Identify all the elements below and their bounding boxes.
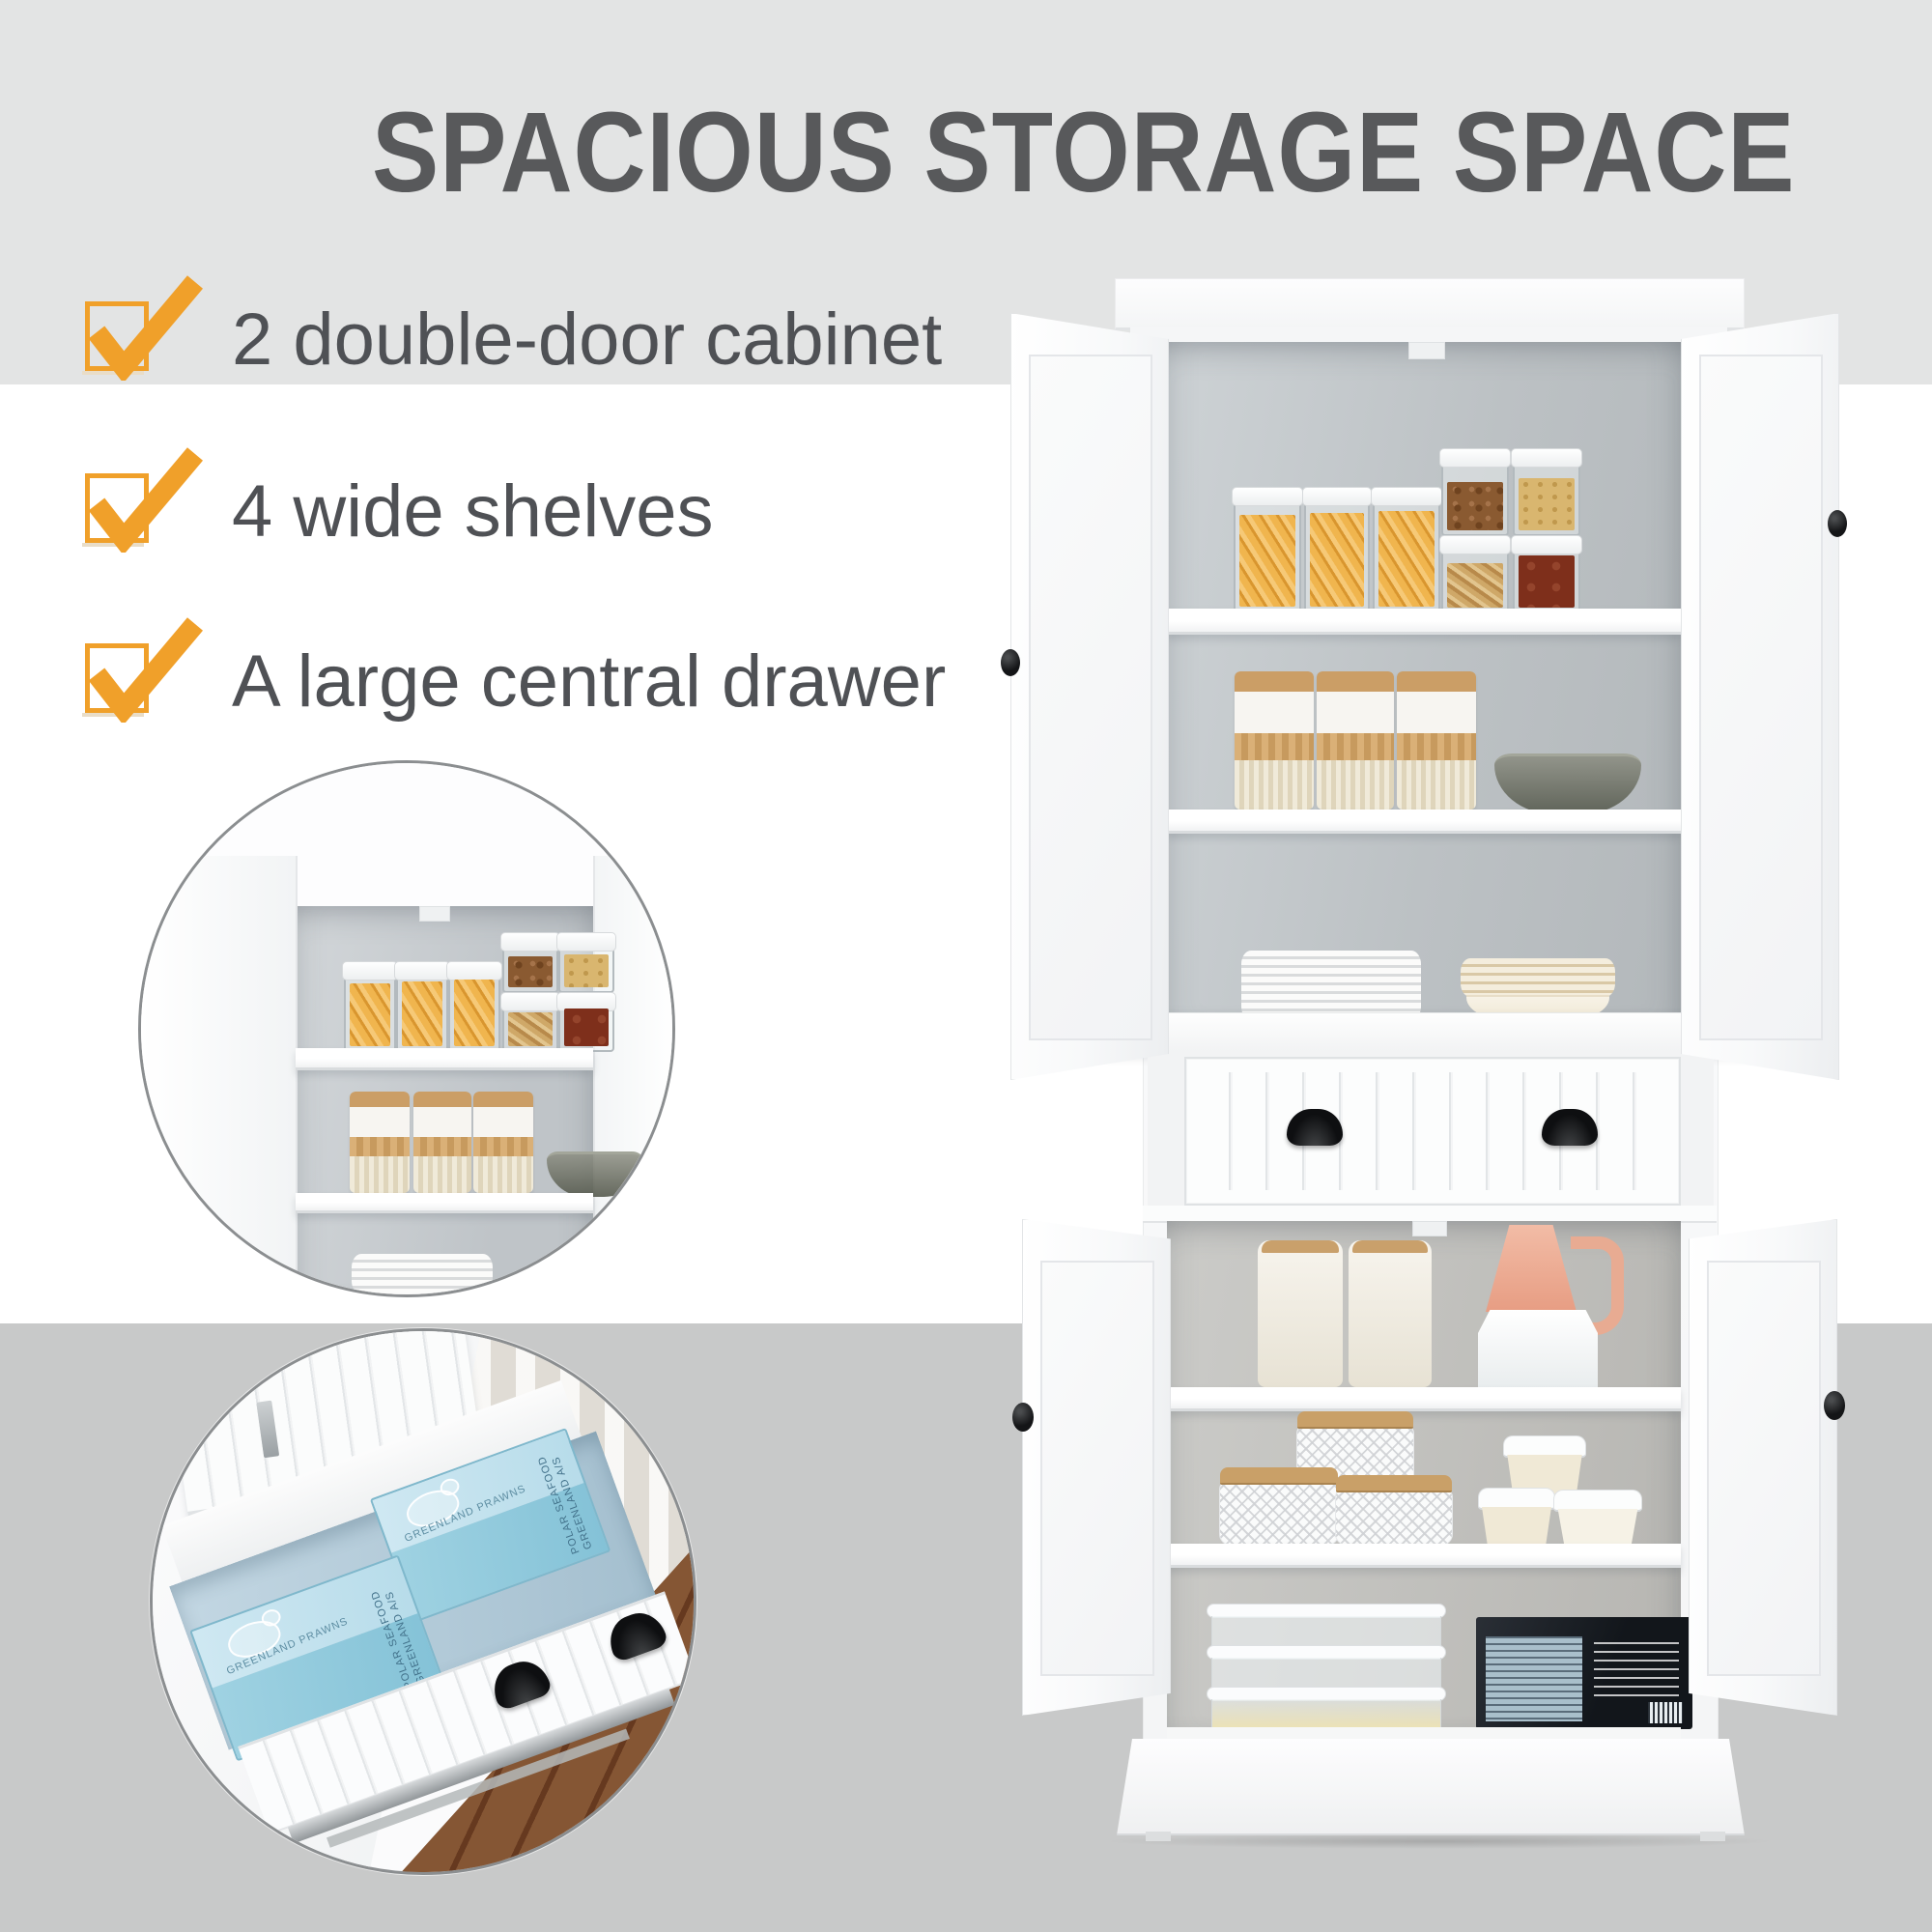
chickpea-container xyxy=(1513,449,1580,536)
ribbed-base xyxy=(1397,760,1476,810)
penne-pasta xyxy=(1378,511,1435,607)
penne-pasta xyxy=(350,983,390,1046)
container-lid xyxy=(342,961,398,980)
canister-top xyxy=(350,1107,410,1138)
container-lid xyxy=(1232,487,1303,506)
drawer-cup-handle xyxy=(1287,1109,1343,1146)
box-body xyxy=(1211,1658,1441,1688)
walnut-container xyxy=(502,933,558,993)
shelf xyxy=(1167,1544,1681,1568)
canister-top xyxy=(1397,692,1476,733)
box-body xyxy=(1211,1699,1441,1729)
walnuts xyxy=(1447,482,1503,530)
checkmark-icon xyxy=(79,288,205,394)
ceramic-canister xyxy=(473,1092,533,1193)
red-dates xyxy=(564,1009,609,1046)
product-infographic: SPACIOUS STORAGE SPACE 2 double-door cab… xyxy=(0,0,1932,1932)
shelf xyxy=(1167,609,1681,635)
cabinet-foot xyxy=(1146,1832,1171,1841)
chickpeas xyxy=(564,954,609,987)
rattan-band xyxy=(413,1137,471,1156)
chickpeas xyxy=(1519,478,1575,530)
canister-top xyxy=(1235,692,1314,733)
upper-left-door xyxy=(1010,313,1169,1080)
check-tick-icon xyxy=(89,274,203,381)
ribbed-base xyxy=(1235,760,1314,810)
checklist-item-label: 2 double-door cabinet xyxy=(232,303,942,377)
checklist-item-label: A large central drawer xyxy=(232,645,946,719)
penne-pasta xyxy=(402,981,442,1046)
tub-body xyxy=(1478,1507,1555,1544)
hinge xyxy=(256,1401,279,1459)
door-knob xyxy=(1001,649,1020,676)
drawer-cup-handle xyxy=(1542,1109,1598,1146)
penne-pasta xyxy=(454,980,495,1046)
cabinet-crown-top xyxy=(1115,278,1745,330)
tub-lid xyxy=(1503,1435,1586,1458)
cereal-container xyxy=(1441,536,1509,613)
food-storage-box xyxy=(1209,1687,1443,1729)
container-lid xyxy=(1302,487,1372,506)
canister-top xyxy=(413,1107,471,1138)
walnut-container xyxy=(1441,449,1509,536)
ceramic-canister xyxy=(1317,671,1394,810)
rattan-band xyxy=(1397,733,1476,759)
container-lid xyxy=(1511,535,1582,554)
inset-open-drawer-closeup: GREENLAND PRAWNS POLAR SEAFOOD GREENLAND… xyxy=(150,1328,696,1875)
container-lid xyxy=(500,932,560,952)
ribbed-base xyxy=(413,1156,471,1193)
checkmark-icon xyxy=(79,460,205,566)
canister-top xyxy=(473,1107,533,1138)
walnuts xyxy=(508,956,553,987)
door-latch xyxy=(1408,342,1445,359)
check-tick-icon xyxy=(89,446,203,553)
rattan-band xyxy=(1317,733,1394,759)
cabinet-shadow xyxy=(1101,1833,1777,1849)
door-knob xyxy=(1824,1391,1845,1420)
shelf xyxy=(296,1193,593,1213)
plinth-base xyxy=(1117,1739,1745,1835)
icecream-tub xyxy=(1478,1488,1555,1544)
checkmark-icon xyxy=(79,630,205,736)
textured-canister xyxy=(1219,1480,1339,1546)
central-drawer xyxy=(1184,1057,1681,1206)
plate-stack xyxy=(1241,951,1421,1020)
ribbed-base xyxy=(473,1156,533,1193)
pasta-container xyxy=(1234,488,1301,612)
drawer-cup-handle xyxy=(603,1606,669,1663)
page-title: SPACIOUS STORAGE SPACE xyxy=(372,85,1795,222)
cabinet-floor-board xyxy=(1167,1727,1681,1739)
inset-top-cabinet-closeup xyxy=(138,760,675,1297)
tub-lid xyxy=(1553,1490,1642,1512)
door-knob xyxy=(1828,510,1847,537)
container-lid xyxy=(556,932,616,952)
storage-cylinder xyxy=(1258,1240,1343,1387)
tub-lid xyxy=(1478,1488,1555,1510)
drawer-beadboard-panel xyxy=(1196,1072,1669,1190)
box-text-lines xyxy=(1594,1642,1679,1698)
pasta-container xyxy=(1304,488,1370,612)
cereal xyxy=(508,1012,553,1046)
black-product-box xyxy=(1476,1617,1692,1729)
ceramic-canister xyxy=(1235,671,1314,810)
checklist-item-label: 4 wide shelves xyxy=(232,475,714,549)
door-latch xyxy=(419,906,450,922)
carafe-top xyxy=(1486,1225,1577,1312)
check-tick-icon xyxy=(89,616,203,723)
shelf xyxy=(1167,810,1681,834)
container-lid xyxy=(1371,487,1442,506)
container-lid xyxy=(500,992,560,1011)
door-latch xyxy=(1412,1221,1447,1236)
cabinet-foot xyxy=(1700,1832,1725,1841)
food-storage-box xyxy=(1209,1604,1443,1646)
door-knob xyxy=(1012,1403,1034,1432)
canister-top xyxy=(1317,692,1394,733)
barcode xyxy=(1648,1702,1683,1723)
red-dates xyxy=(1519,555,1575,608)
food-storage-box xyxy=(1209,1645,1443,1688)
bowl-stack xyxy=(1461,958,1615,997)
rattan-band xyxy=(473,1137,533,1156)
ribbed-base xyxy=(1317,760,1394,810)
cereal-container xyxy=(502,993,558,1052)
pasta-container xyxy=(1373,488,1440,612)
shelf xyxy=(296,1048,593,1070)
ceramic-canister xyxy=(1397,671,1476,810)
pasta-container xyxy=(344,962,396,1052)
container-lid xyxy=(1439,448,1511,468)
carafe-body xyxy=(1478,1310,1598,1387)
icecream-tub xyxy=(1503,1435,1586,1495)
countertop xyxy=(1107,1012,1752,1055)
dates-container xyxy=(1513,536,1580,613)
container-lid xyxy=(394,961,450,980)
box-label-panel xyxy=(1486,1636,1582,1721)
lower-right-door xyxy=(1689,1219,1837,1716)
pasta-container xyxy=(448,962,500,1052)
right-door-edge xyxy=(593,856,674,1294)
coffee-carafe xyxy=(1478,1225,1623,1387)
rattan-band xyxy=(350,1137,410,1156)
storage-cylinder xyxy=(1349,1240,1432,1387)
chickpea-container xyxy=(558,933,614,993)
box-body xyxy=(1211,1616,1441,1646)
container-lid xyxy=(1439,535,1511,554)
penne-pasta xyxy=(1239,515,1295,607)
drawer-cup-handle xyxy=(487,1655,554,1712)
plate-stack xyxy=(352,1254,493,1294)
ribbed-base xyxy=(350,1156,410,1193)
dates-container xyxy=(558,993,614,1052)
ceramic-canister xyxy=(413,1092,471,1193)
penne-pasta xyxy=(1310,513,1364,607)
container-lid xyxy=(446,961,502,980)
icecream-tub xyxy=(1553,1490,1642,1544)
textured-canister xyxy=(1335,1488,1453,1546)
upper-right-door xyxy=(1681,313,1839,1080)
pasta-container xyxy=(396,962,448,1052)
container-lid xyxy=(1511,448,1582,468)
rattan-band xyxy=(1235,733,1314,759)
left-door-edge xyxy=(141,856,298,1294)
tub-body xyxy=(1553,1509,1642,1544)
lower-left-door xyxy=(1022,1219,1171,1716)
shelf xyxy=(1167,1387,1681,1411)
ceramic-canister xyxy=(350,1092,410,1193)
cereal xyxy=(1447,563,1503,608)
